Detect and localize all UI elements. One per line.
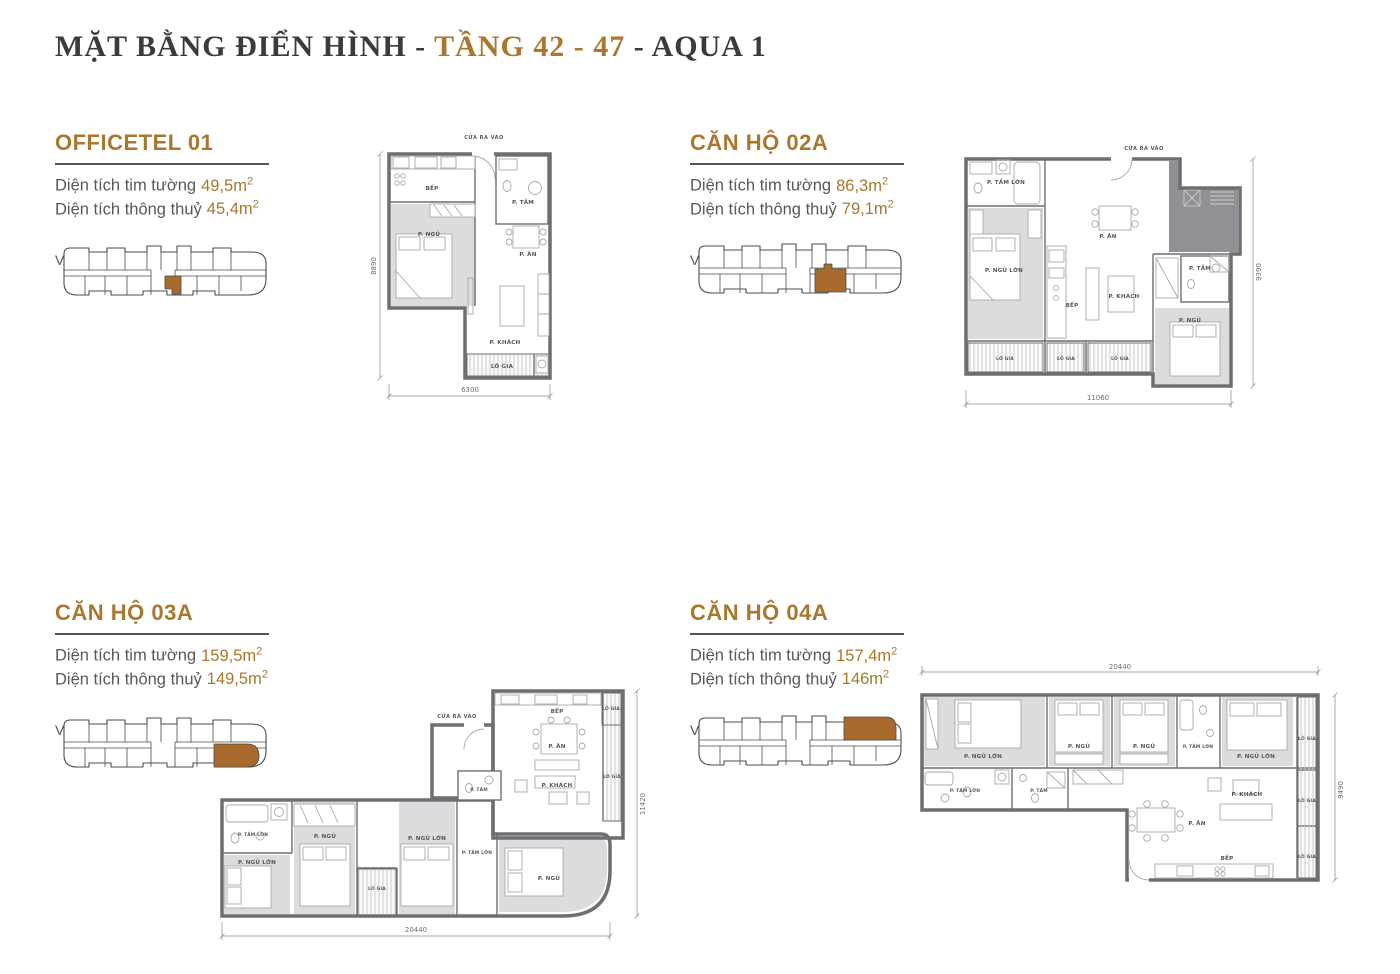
room-label-living: P. KHÁCH — [1232, 791, 1263, 798]
entrance-opening — [1111, 155, 1132, 163]
dimension-width: 20440 — [220, 922, 613, 940]
entrance-door-swing — [464, 729, 484, 749]
svg-text:11060: 11060 — [1087, 394, 1109, 402]
entrance-label: CỬA RA VÀO — [437, 712, 477, 720]
svg-text:6300: 6300 — [461, 386, 479, 394]
entrance-label: CỬA RA VÀO — [464, 133, 504, 141]
area-clear-value: 45,4m2 — [207, 200, 259, 218]
area-clear-value: 146m2 — [842, 670, 889, 688]
room-label-dining: P. ĂN — [548, 743, 565, 750]
locator-map-officetel01 — [55, 240, 271, 302]
area-wall-line: Diện tích tim tường49,5m2 — [55, 174, 335, 198]
title-underline — [55, 633, 269, 635]
bath-large-bottom-fixtures — [925, 770, 1009, 802]
room-label-bedroom-large: P. NGỦ LỚN — [985, 266, 1023, 274]
area-clear-label: Diện tích thông thuỷ — [690, 670, 837, 688]
area-clear-label: Diện tích thông thuỷ — [55, 200, 202, 218]
room-label-loggia: LÔ GIA — [603, 773, 621, 780]
room-label-bath-large: P. TẮM LỚN — [987, 178, 1025, 186]
area-clear-label: Diện tích thông thuỷ — [690, 200, 837, 218]
bath-fixtures — [1020, 772, 1066, 803]
svg-text:20440: 20440 — [405, 926, 427, 934]
room-label-bedroom: P. NGỦ — [314, 832, 336, 840]
entrance-opening — [464, 721, 484, 729]
unit-title: CĂN HỘ 04A — [690, 600, 970, 626]
locator-map-canho04a — [690, 710, 906, 772]
dining-furniture — [506, 226, 546, 248]
room-label-bedroom-large: P. NGỦ LỚN — [964, 752, 1002, 760]
dimension-width: 11060 — [964, 390, 1234, 408]
area-wall-label: Diện tích tim tường — [55, 647, 196, 665]
area-wall-value: 86,3m2 — [836, 177, 888, 195]
page-title-prefix: MẶT BẰNG ĐIỂN HÌNH - — [55, 30, 434, 63]
room-label-bath-large: P. TẮM LỚN — [238, 830, 268, 838]
room-label-bath: P. TẮM — [512, 198, 534, 206]
floorplan-canho02a: CỬA RA VÀO P. TẮM LỚN P. NGỦ LỚN P. ĂN B… — [948, 126, 1268, 418]
room-label-bedroom: P. NGỦ — [1068, 742, 1090, 750]
area-wall-value: 49,5m2 — [201, 177, 253, 195]
page-title-suffix: - AQUA 1 — [625, 30, 767, 63]
page-title-accent: TẦNG 42 - 47 — [434, 30, 625, 63]
room-label-loggia: LÔ GIA — [1111, 355, 1129, 362]
room-label-bedroom: P. NGỦ — [1133, 742, 1155, 750]
room-label-loggia: LÔ GIA — [368, 885, 386, 892]
room-label-loggia: LÔ GIA — [1298, 853, 1316, 860]
kitchen-fixtures — [391, 156, 475, 185]
svg-text:9390: 9390 — [1255, 263, 1263, 281]
floorplan-canho04a: P. NGỦ LỚN P. NGỦ P. NGỦ P. TẮM LỚN P. N… — [915, 658, 1355, 908]
title-underline — [690, 633, 904, 635]
highlighted-unit — [844, 717, 896, 740]
area-wall-value: 159,5m2 — [201, 647, 262, 665]
room-label-kitchen: BẾP — [1221, 854, 1234, 862]
dimension-width: 6300 — [387, 384, 553, 400]
svg-text:20440: 20440 — [1109, 663, 1131, 671]
room-label-dining: P. ĂN — [1099, 233, 1116, 240]
room-label-kitchen: BẾP — [1066, 301, 1079, 309]
kitchen-fixtures — [1155, 864, 1273, 878]
area-wall-label: Diện tích tim tường — [55, 177, 196, 195]
room-label-loggia: LÔ GIA — [1298, 735, 1316, 742]
room-label-living: P. KHÁCH — [490, 339, 521, 346]
bedroom-furniture — [1170, 322, 1220, 376]
area-wall-line: Diện tích tim tường86,3m2 — [690, 174, 970, 198]
dimension-height: 9390 — [1251, 157, 1264, 389]
room-label-bedroom: P. NGỦ — [1179, 316, 1201, 324]
title-underline — [690, 163, 904, 165]
room-label-loggia: LÔ GIA — [996, 355, 1014, 362]
dimension-height: 8890 — [370, 152, 383, 381]
locator-map-canho02a — [690, 238, 906, 300]
area-wall-label: Diện tích tim tường — [690, 177, 831, 195]
living-furniture — [515, 776, 589, 804]
room-label-kitchen: BẾP — [426, 184, 439, 192]
dimension-width: 20440 — [920, 663, 1321, 676]
living-furniture — [1208, 778, 1272, 820]
room-label-loggia: LÔ GIA — [1057, 355, 1075, 362]
room-label-bedroom: P. NGỦ — [418, 230, 440, 238]
kitchen-fixtures — [1047, 246, 1066, 338]
room-label-loggia: LÔ GIA — [1298, 797, 1316, 804]
room-label-bath-large: P. TẮM LỚN — [1183, 742, 1213, 750]
entrance-label: CỬA RA VÀO — [1124, 144, 1164, 152]
dining-furniture — [1129, 801, 1184, 842]
room-label-bedroom: P. NGỦ — [538, 874, 560, 882]
dining-furniture — [1092, 206, 1138, 230]
room-label-bedroom-large: P. NGỦ LỚN — [408, 834, 446, 842]
svg-text:11420: 11420 — [639, 793, 647, 815]
area-clear-line: Diện tích thông thuỷ45,4m2 — [55, 198, 335, 222]
room-label-bath: P. TẮM — [1189, 264, 1211, 272]
dimension-height: 11420 — [635, 689, 648, 919]
page-title: MẶT BẰNG ĐIỂN HÌNH - TẦNG 42 - 47 - AQUA… — [55, 30, 767, 64]
unit-title: CĂN HỘ 03A — [55, 600, 335, 626]
corridor-wardrobe — [1073, 770, 1123, 784]
building-footprint — [699, 244, 901, 293]
svg-text:9490: 9490 — [1337, 781, 1345, 799]
loggia-areas — [1298, 697, 1316, 878]
room-label-dining: P. ĂN — [519, 251, 536, 258]
svg-text:8890: 8890 — [370, 257, 378, 275]
room-label-loggia: LÔ GIA — [491, 363, 514, 370]
room-label-kitchen: BẾP — [551, 707, 564, 715]
room-label-dining: P. ĂN — [1188, 820, 1205, 827]
unit-title: OFFICETEL 01 — [55, 130, 335, 156]
brochure-page: MẶT BẰNG ĐIỂN HÌNH - TẦNG 42 - 47 - AQUA… — [0, 0, 1400, 974]
area-clear-value: 79,1m2 — [842, 200, 894, 218]
area-wall-value: 157,4m2 — [836, 647, 897, 665]
room-label-loggia: LÔ GIA — [602, 705, 620, 712]
hall-wardrobe — [1156, 258, 1178, 298]
title-underline — [55, 163, 269, 165]
room-label-living: P. KHÁCH — [542, 782, 573, 789]
floorplan-canho03a: CỬA RA VÀO BẾP P. ĂN P. KHÁCH LÔ GIA LÔ … — [205, 668, 655, 968]
bath-large-top-fixtures — [1180, 700, 1214, 737]
dimension-height: 9490 — [1333, 693, 1346, 883]
room-label-bedroom-large: P. NGỦ LỚN — [238, 858, 276, 866]
room-label-bedroom-large: P. NGỦ LỚN — [1237, 752, 1275, 760]
area-clear-label: Diện tích thông thuỷ — [55, 670, 202, 688]
living-furniture — [468, 274, 549, 336]
room-label-living: P. KHÁCH — [1109, 293, 1140, 300]
room-label-bath-large: P. TẮM LỚN — [462, 848, 492, 856]
area-clear-line: Diện tích thông thuỷ79,1m2 — [690, 198, 970, 222]
area-wall-line: Diện tích tim tường159,5m2 — [55, 644, 335, 668]
room-label-bath: P. TẮM — [1030, 786, 1048, 794]
floorplan-officetel01: CỬA RA VÀO BẾP P. TẮM P. NGỦ P. ĂN P. KH… — [372, 126, 592, 421]
unit-title: CĂN HỘ 02A — [690, 130, 970, 156]
area-wall-label: Diện tích tim tường — [690, 647, 831, 665]
